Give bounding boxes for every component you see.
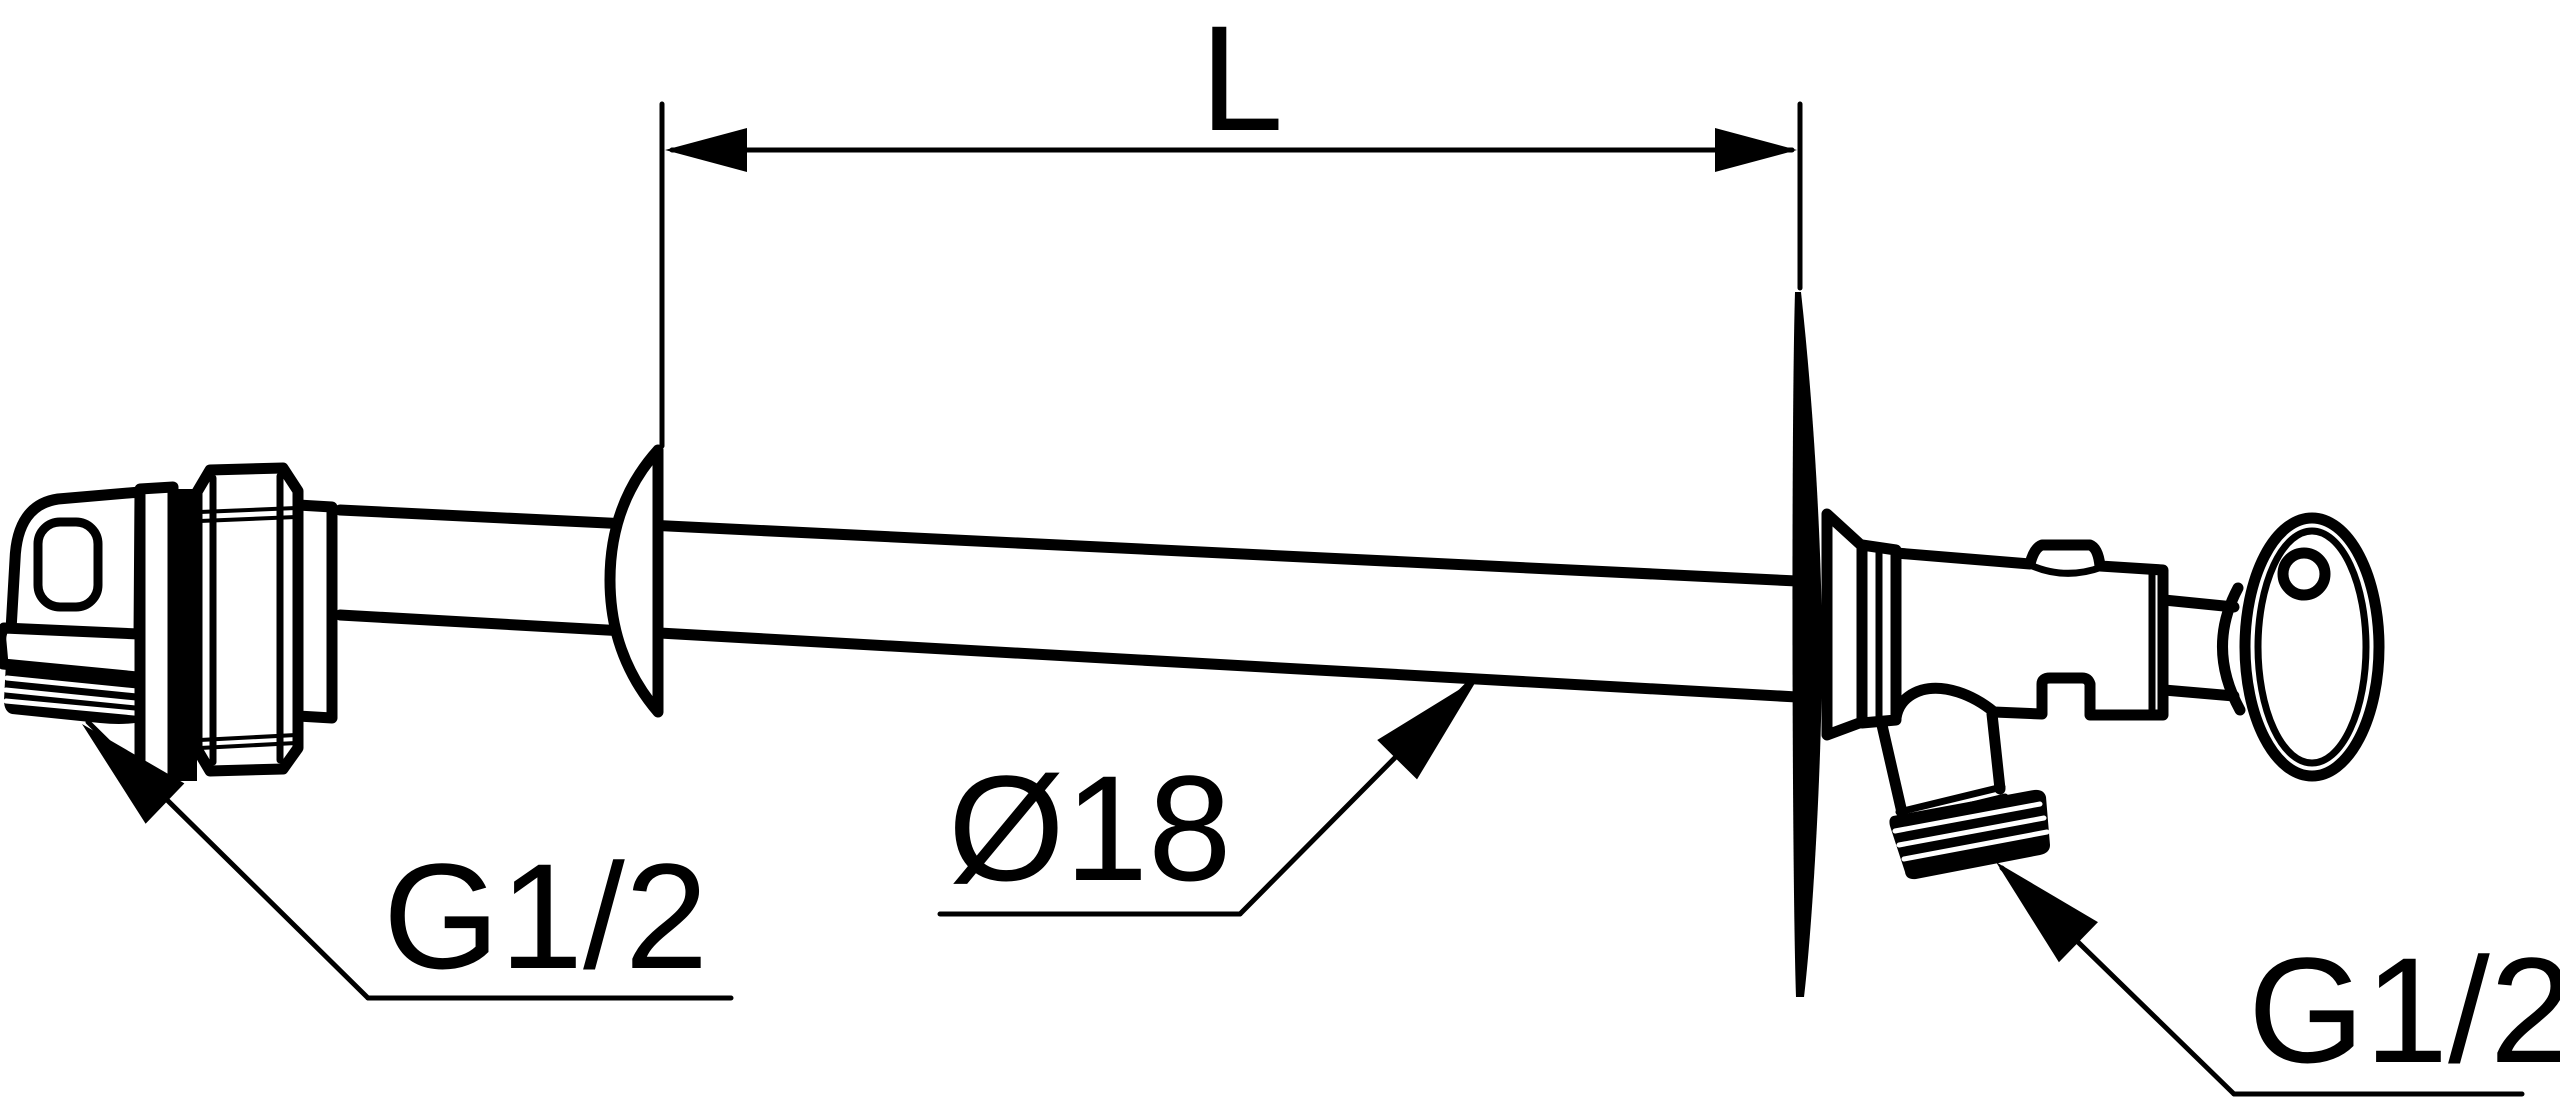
body-block [1896,545,2163,718]
pipe-bell-flange [610,450,658,712]
key-stem-top [2164,600,2234,607]
callout-pipe-diameter: Ø18 [940,658,1498,914]
valve-body [1827,514,2163,735]
key-bow-hole [2283,553,2325,595]
length-dimension-label: L [1200,0,1283,162]
dim-arrow-right-icon [1715,128,1797,172]
frost-proof-tap-drawing: L G1/2 Ø18 G1/2 [0,0,2560,1108]
spout-left-edge [1879,712,1903,817]
outlet-thread-label: G1/2 [2248,926,2560,1094]
callout-outlet-thread: G1/2 [1976,842,2560,1094]
pipe-top-edge [340,510,1797,581]
outlet-spout [1879,712,2050,879]
inlet-thread-label: G1/2 [383,832,708,1000]
elbow-body [11,492,140,638]
spout-right-edge [1992,714,2000,789]
nut-pipe-ring [298,505,332,718]
pipe-tube [340,510,1797,697]
dim-arrow-left-icon [665,128,747,172]
technical-drawing-page: L G1/2 Ø18 G1/2 [0,0,2560,1108]
pipe-diameter-label: Ø18 [948,744,1232,912]
key-stem-bottom [2164,690,2234,696]
union-nut-assembly [140,468,332,783]
dimension-length: L [662,0,1800,446]
pipe-bottom-edge [340,615,1797,697]
key-handle [2164,518,2379,776]
elbow-fitting [1,492,151,724]
wall-flange-disc [1792,292,1822,997]
elbow-olive-ring [140,487,173,783]
